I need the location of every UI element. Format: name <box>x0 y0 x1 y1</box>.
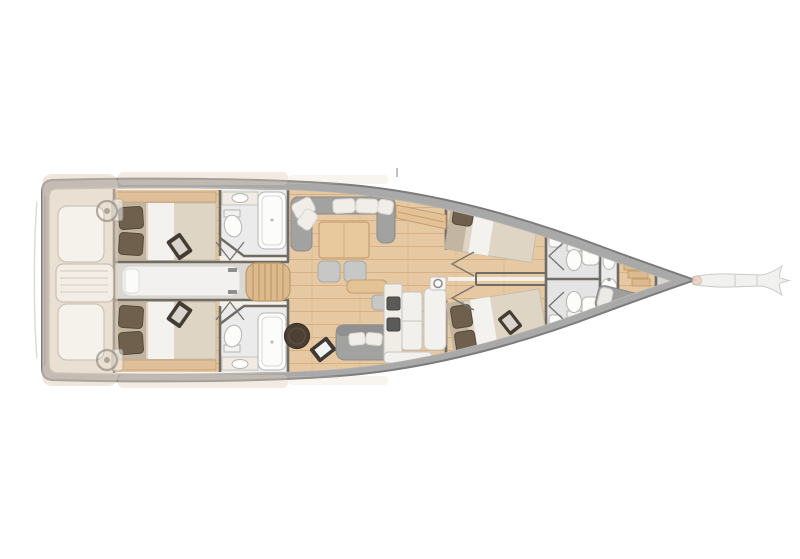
center-berth-pillow <box>125 269 139 293</box>
center-berth-mattress <box>122 266 240 296</box>
aft-stbd-pillow <box>118 305 143 329</box>
sofa-pillow <box>365 332 382 346</box>
bow-step <box>632 279 650 286</box>
floor-plan-canvas <box>0 0 800 559</box>
swim-platform-ghost-line <box>34 202 37 358</box>
helm-wheel-stbd-hub <box>104 357 110 363</box>
aft-head-port-drain <box>270 218 273 221</box>
nav-ottoman <box>285 324 310 349</box>
salon-console <box>347 280 387 293</box>
settee-cushion <box>377 199 394 215</box>
aft-port-pillow <box>118 232 143 256</box>
aft-port-bed-runner <box>148 203 174 260</box>
aft-stbd-bed-runner <box>148 302 174 359</box>
berth-latch-mark <box>228 290 237 294</box>
helm-wheel-port-hub <box>104 208 110 214</box>
bow-faucet <box>607 278 611 282</box>
salon-stool <box>344 261 366 282</box>
aft-stbd-shelf <box>116 360 216 370</box>
aft-head-stbd-drain <box>270 340 273 343</box>
aft-head-port-sink <box>232 194 248 203</box>
bowsprit <box>693 266 789 295</box>
galley-appliance <box>387 297 400 310</box>
cockpit-bench-stbd <box>58 304 104 360</box>
galley-counter <box>424 288 446 350</box>
aft-port-shelf <box>116 192 216 202</box>
sofa-pillow <box>348 332 365 346</box>
salon-stool <box>318 261 340 282</box>
fwd-head-port-toilet-bowl <box>567 250 582 271</box>
boat-floor-plan <box>0 0 800 559</box>
galley-appliance <box>387 318 400 331</box>
fwd-head-stbd-toilet-bowl <box>567 292 582 313</box>
settee-cushion <box>356 199 378 214</box>
side-deck-ghost-top-fade <box>288 175 388 184</box>
interior-layer <box>113 189 670 373</box>
aft-head-stbd-sink <box>232 360 248 369</box>
cockpit-table <box>56 264 114 302</box>
side-deck-ghost-bottom-fade <box>288 376 388 385</box>
bow-fitting-joint <box>693 276 702 285</box>
mast-post <box>434 280 442 288</box>
side-deck-ghost-top <box>118 172 288 185</box>
berth-latch-mark <box>228 268 237 272</box>
side-deck-ghost-bottom <box>118 375 288 388</box>
settee-cushion <box>333 198 356 213</box>
